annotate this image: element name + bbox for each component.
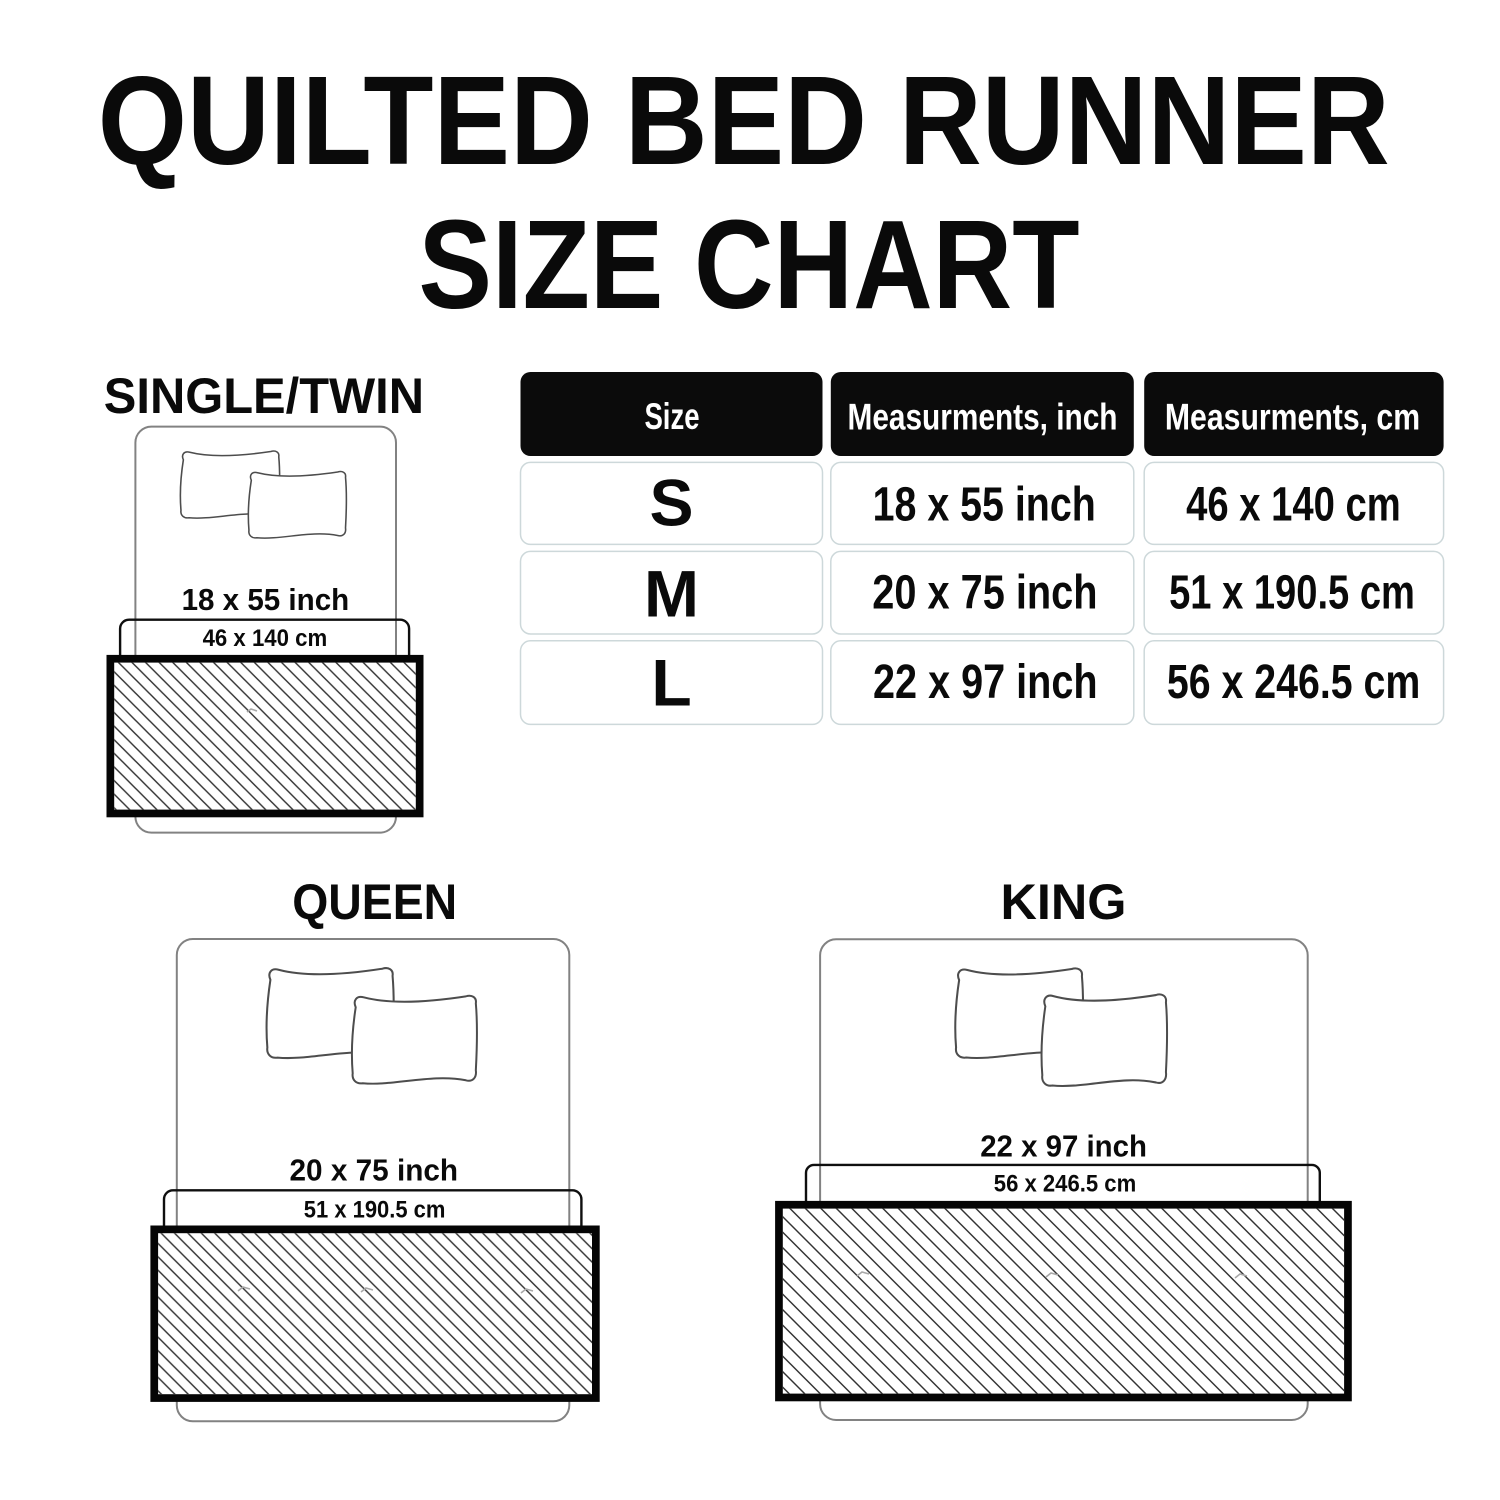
svg-text:SINGLE/TWIN: SINGLE/TWIN [104,368,424,424]
svg-text:KING: KING [1001,874,1127,930]
svg-text:QUEEN: QUEEN [292,874,457,930]
svg-text:46 x 140 cm: 46 x 140 cm [1186,478,1401,532]
svg-text:18 x 55 inch: 18 x 55 inch [182,582,350,617]
svg-text:51 x 190.5 cm: 51 x 190.5 cm [1169,565,1415,619]
svg-text:Measurments, inch: Measurments, inch [848,396,1118,437]
svg-text:Measurments, cm: Measurments, cm [1165,396,1420,437]
svg-text:20 x 75 inch: 20 x 75 inch [872,565,1097,619]
svg-text:22 x 97 inch: 22 x 97 inch [980,1129,1147,1164]
svg-text:22 x 97 inch: 22 x 97 inch [873,655,1098,709]
svg-text:51 x 190.5 cm: 51 x 190.5 cm [304,1197,446,1223]
svg-text:18 x 55 inch: 18 x 55 inch [873,478,1096,532]
svg-text:Size: Size [644,396,699,437]
svg-text:56 x 246.5 cm: 56 x 246.5 cm [1167,655,1420,709]
svg-text:SIZE CHART: SIZE CHART [419,194,1080,335]
svg-text:QUILTED BED RUNNER: QUILTED BED RUNNER [98,50,1390,191]
svg-text:S: S [649,465,693,539]
svg-text:46 x 140 cm: 46 x 140 cm [203,626,328,652]
svg-text:20 x 75 inch: 20 x 75 inch [289,1153,458,1188]
svg-text:M: M [644,557,699,631]
svg-text:56 x 246.5 cm: 56 x 246.5 cm [994,1172,1136,1198]
svg-text:L: L [651,645,691,719]
